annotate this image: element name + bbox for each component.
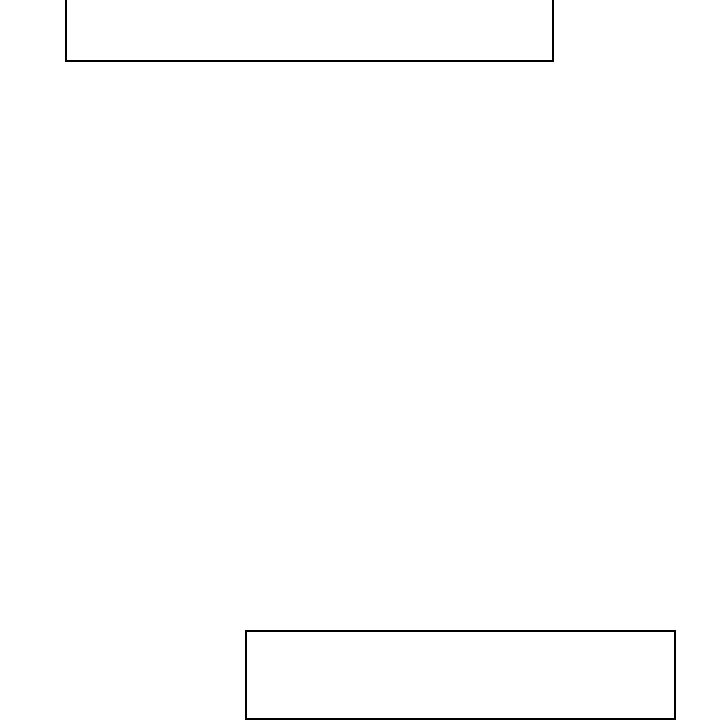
top-box-outline: [65, 0, 554, 62]
bottom-box-outline: [245, 630, 676, 720]
